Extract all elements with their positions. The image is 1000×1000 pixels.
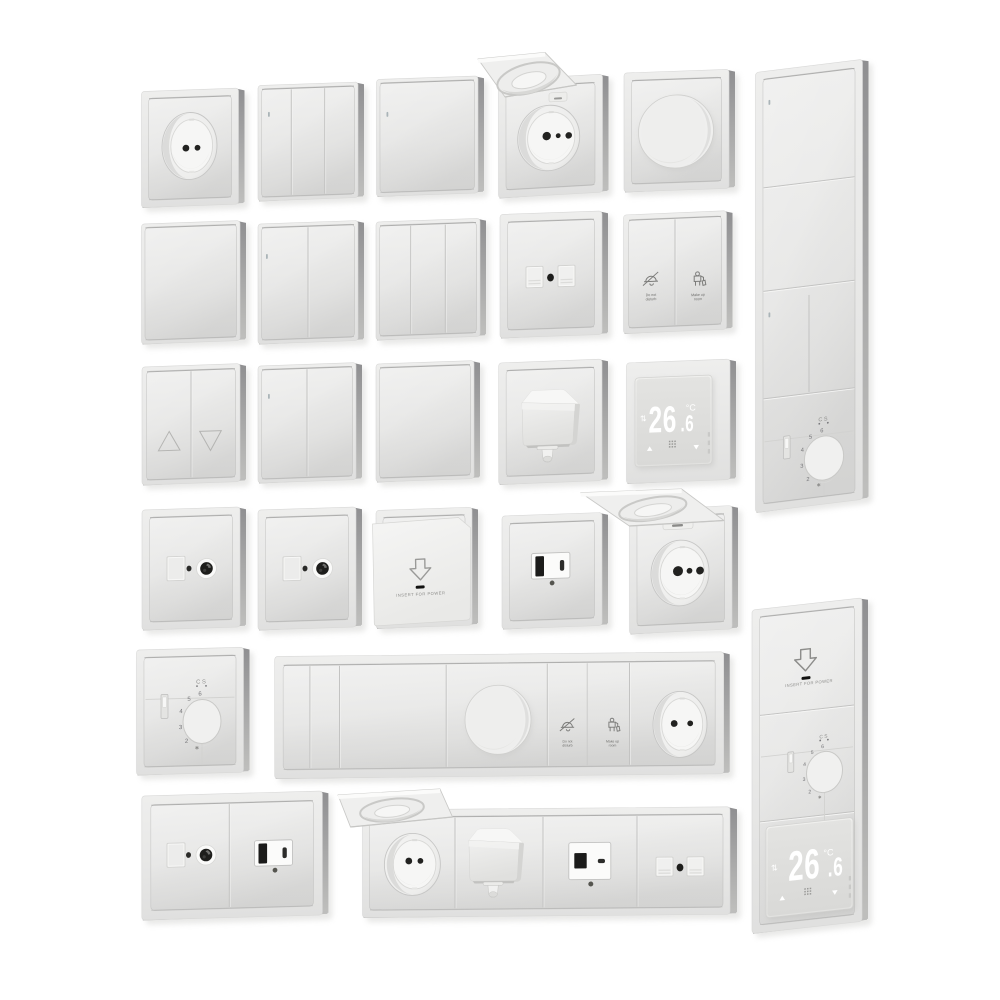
svg-text:disturb: disturb	[646, 297, 657, 301]
svg-text:26: 26	[648, 399, 676, 441]
svg-text:5: 5	[811, 750, 814, 756]
svg-text:2: 2	[808, 789, 811, 795]
svg-text:3: 3	[803, 777, 806, 783]
svg-text:4: 4	[803, 762, 806, 768]
svg-text:C S: C S	[819, 733, 828, 740]
svg-text:26: 26	[788, 840, 820, 891]
svg-text:✱: ✱	[817, 482, 821, 488]
svg-text:disturb: disturb	[562, 743, 572, 747]
svg-text:✱: ✱	[195, 746, 199, 752]
svg-text:C S: C S	[196, 679, 206, 685]
svg-text:6: 6	[821, 744, 824, 750]
svg-text:6: 6	[820, 428, 823, 434]
svg-text:3: 3	[800, 464, 803, 470]
svg-text:5: 5	[809, 434, 812, 440]
svg-text:⇅: ⇅	[640, 414, 647, 423]
svg-text:2: 2	[806, 477, 809, 483]
svg-text:°C: °C	[686, 402, 697, 412]
svg-text:room: room	[694, 297, 702, 301]
svg-text:°C: °C	[823, 847, 834, 858]
svg-text:⇅: ⇅	[771, 863, 778, 873]
svg-text:.6: .6	[680, 411, 694, 437]
svg-text:C S: C S	[818, 416, 827, 423]
svg-text:room: room	[609, 743, 617, 747]
